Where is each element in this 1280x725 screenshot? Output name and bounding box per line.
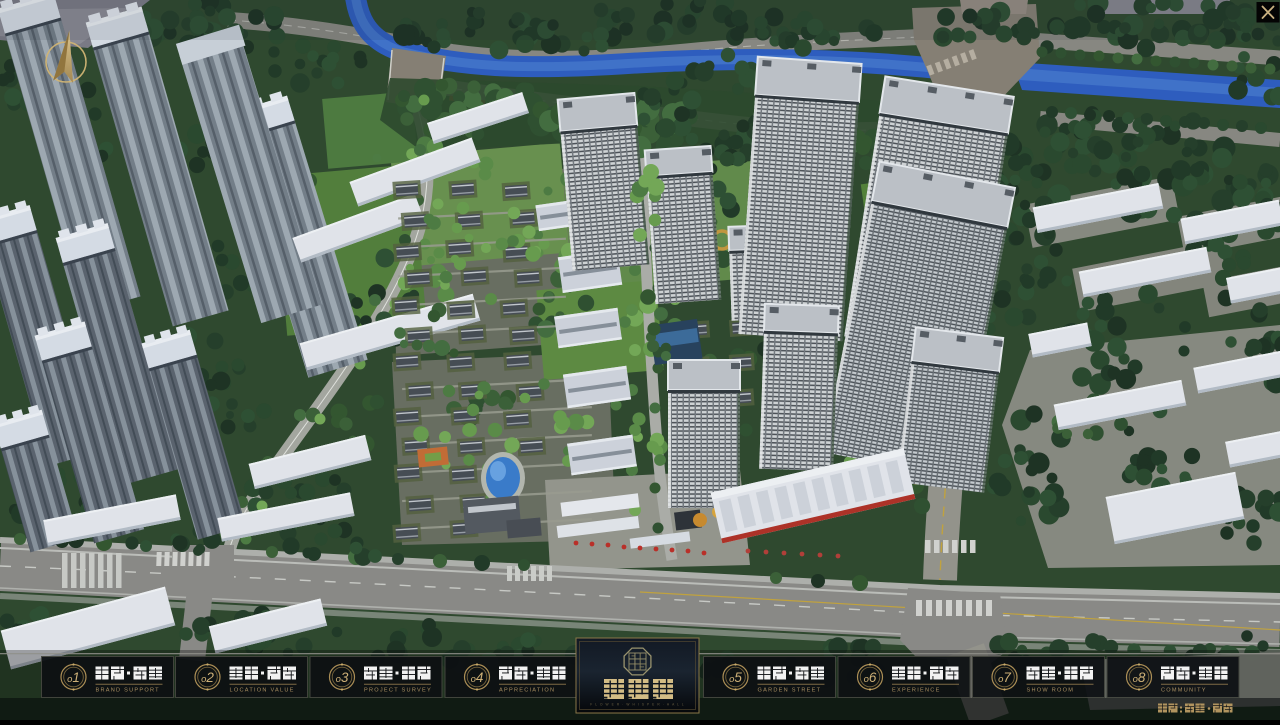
svg-text:SHOW ROOM: SHOW ROOM bbox=[1027, 688, 1075, 694]
svg-text:EXPERIENCE: EXPERIENCE bbox=[892, 688, 941, 694]
svg-text:GARDEN STREET: GARDEN STREET bbox=[758, 688, 822, 694]
svg-text:COMMUNITY: COMMUNITY bbox=[1161, 688, 1207, 694]
svg-text:APPRECIATION: APPRECIATION bbox=[499, 688, 555, 694]
svg-text:LOCATION VALUE: LOCATION VALUE bbox=[230, 688, 295, 694]
svg-text:PROJECT SURVEY: PROJECT SURVEY bbox=[364, 688, 432, 694]
svg-text:BRAND SUPPORT: BRAND SUPPORT bbox=[96, 688, 160, 694]
svg-text:F L O W E R · W H I S P E R ·: F L O W E R · W H I S P E R · H A L L bbox=[590, 703, 685, 707]
